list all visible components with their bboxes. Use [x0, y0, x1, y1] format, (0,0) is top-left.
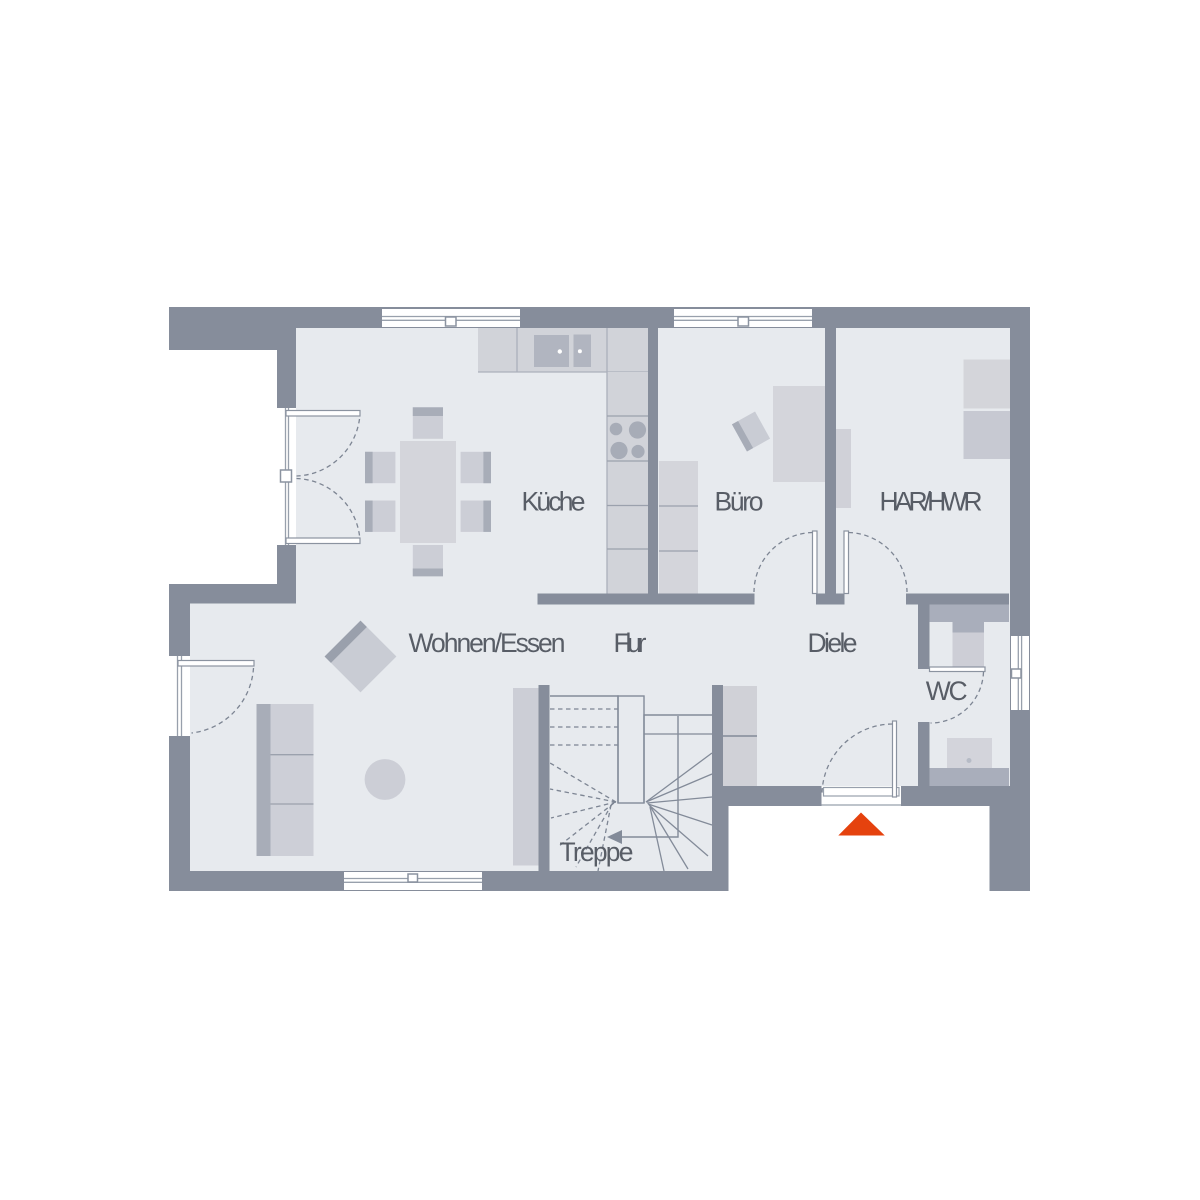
svg-text:Diele: Diele: [808, 628, 858, 658]
svg-text:WC: WC: [926, 676, 968, 706]
svg-text:Küche: Küche: [522, 487, 586, 517]
svg-text:Flur: Flur: [614, 628, 647, 658]
svg-text:HAR/HWR: HAR/HWR: [880, 487, 983, 517]
svg-text:Wohnen/Essen: Wohnen/Essen: [409, 628, 566, 658]
svg-text:Büro: Büro: [715, 487, 764, 517]
svg-text:Treppe: Treppe: [560, 837, 634, 867]
